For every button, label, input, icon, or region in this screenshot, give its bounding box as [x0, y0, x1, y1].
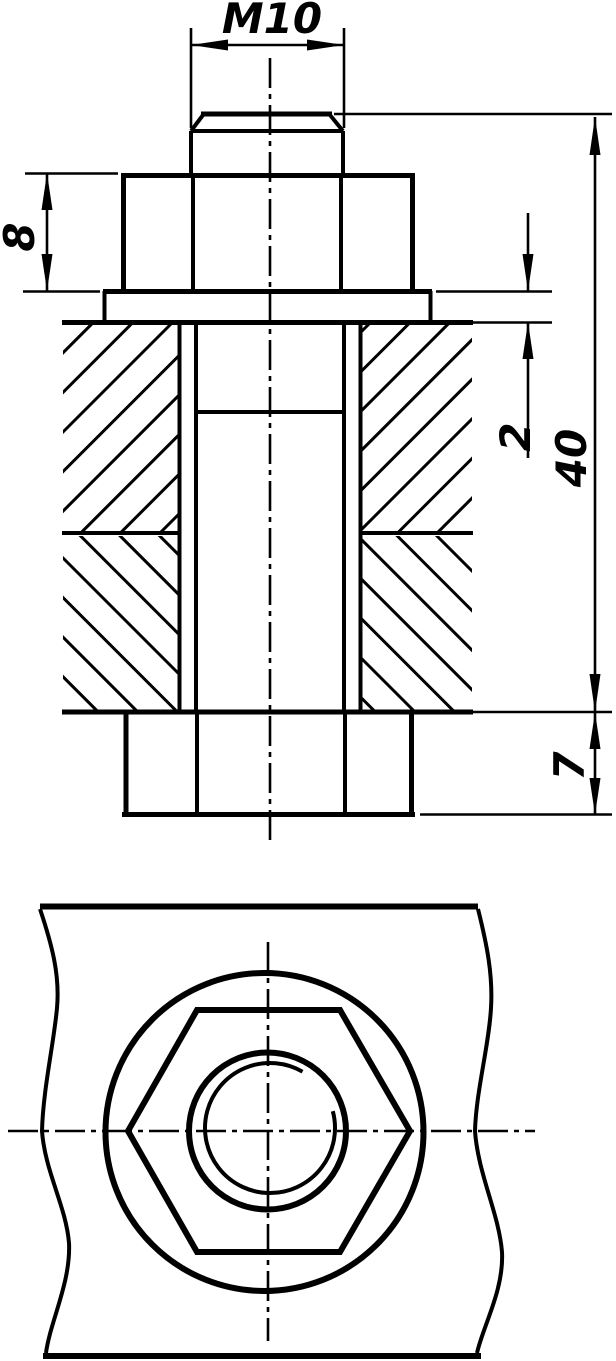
dim-washer-thickness-label: 2: [491, 422, 540, 451]
bolt-head: [122, 712, 415, 816]
dimension-washer-thickness: 2: [491, 213, 540, 458]
dim-thread-label: M10: [222, 0, 322, 43]
plates-section: [62, 322, 612, 712]
engineering-drawing: M10 8: [0, 0, 616, 1361]
arrow-up-icon: [42, 173, 53, 210]
arrow-up-icon: [523, 322, 534, 359]
hatch-lower-left: [63, 536, 178, 711]
washer-section: [103, 291, 432, 322]
hatch-upper-right: [362, 324, 472, 531]
hex-nut: [121, 173, 415, 291]
dimension-bolt-length: 40: [547, 117, 601, 712]
arrow-up-icon: [590, 712, 601, 749]
dim-nut-height-label: 8: [0, 222, 44, 251]
section-view: M10 8: [0, 0, 612, 845]
dim-head-height-label: 7: [545, 751, 594, 781]
dimension-m10: M10: [191, 0, 344, 128]
bolt-tip: [191, 114, 343, 176]
arrow-down-icon: [590, 778, 601, 815]
arrow-down-icon: [590, 674, 601, 712]
plan-view: [8, 907, 535, 1357]
thread-arc: [205, 1063, 335, 1193]
arrow-up-icon: [590, 117, 601, 155]
dim-bolt-length-label: 40: [547, 429, 596, 488]
dimension-head-height: 7: [545, 712, 601, 815]
hatch-upper-left: [63, 324, 178, 531]
dimension-nut-height: 8: [0, 173, 118, 292]
hatch-lower-right: [362, 536, 472, 711]
arrow-down-icon: [523, 254, 534, 291]
arrow-down-icon: [42, 254, 53, 291]
